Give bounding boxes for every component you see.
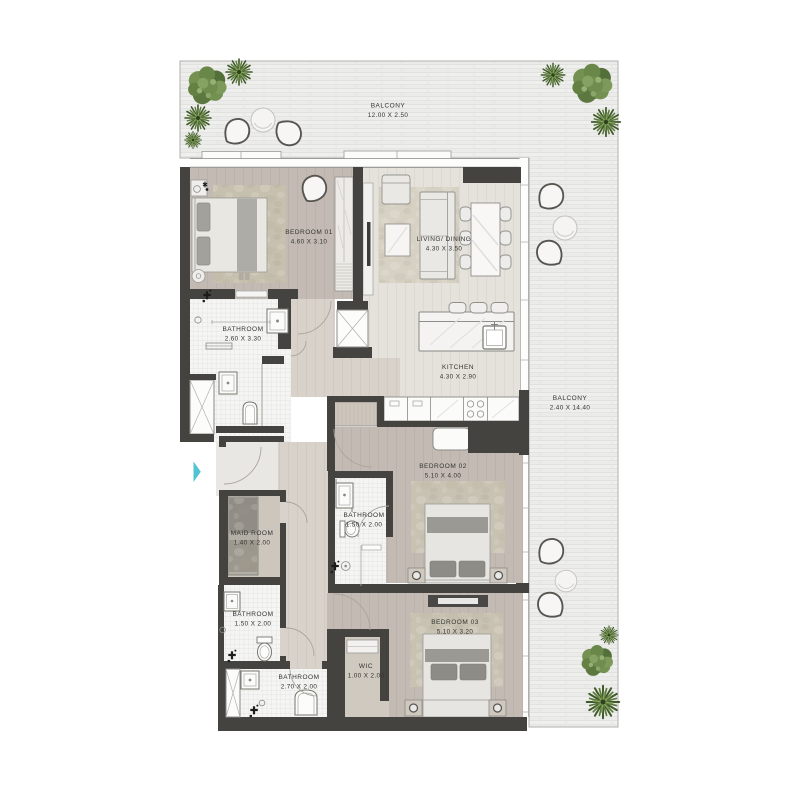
svg-text:BATHROOM: BATHROOM [222, 326, 263, 333]
svg-text:1.50 X 2.00: 1.50 X 2.00 [235, 621, 272, 628]
svg-text:5.10 X 3.20: 5.10 X 3.20 [437, 629, 474, 636]
svg-text:BATHROOM: BATHROOM [343, 512, 384, 519]
svg-text:2.70 X 2.00: 2.70 X 2.00 [281, 684, 318, 691]
svg-text:2.60 X 3.30: 2.60 X 3.30 [225, 336, 262, 343]
svg-text:BALCONY: BALCONY [371, 103, 406, 110]
svg-text:BATHROOM: BATHROOM [278, 674, 319, 681]
svg-text:1.50 X 2.00: 1.50 X 2.00 [346, 522, 383, 529]
svg-text:5.10 X 4.00: 5.10 X 4.00 [425, 473, 462, 480]
svg-text:BEDROOM 01: BEDROOM 01 [285, 229, 333, 236]
svg-text:1.40 X 2.00: 1.40 X 2.00 [234, 540, 271, 547]
svg-text:BALCONY: BALCONY [553, 395, 588, 402]
svg-text:4.30 X 2.90: 4.30 X 2.90 [440, 374, 477, 381]
svg-text:BEDROOM 03: BEDROOM 03 [431, 619, 479, 626]
svg-text:12.00 X 2.50: 12.00 X 2.50 [368, 112, 409, 119]
svg-text:BEDROOM 02: BEDROOM 02 [419, 463, 467, 470]
svg-text:4.60 X 3.10: 4.60 X 3.10 [291, 239, 328, 246]
svg-text:BATHROOM: BATHROOM [232, 611, 273, 618]
svg-text:KITCHEN: KITCHEN [442, 364, 474, 371]
svg-text:1.00 X 2.00: 1.00 X 2.00 [348, 673, 385, 680]
svg-text:WIC: WIC [359, 663, 373, 670]
svg-text:4.30 X 3.50: 4.30 X 3.50 [426, 246, 463, 253]
svg-text:LIVING/ DINING: LIVING/ DINING [417, 236, 472, 243]
svg-text:MAID ROOM: MAID ROOM [231, 530, 274, 537]
svg-text:2.40 X 14.40: 2.40 X 14.40 [550, 405, 591, 412]
